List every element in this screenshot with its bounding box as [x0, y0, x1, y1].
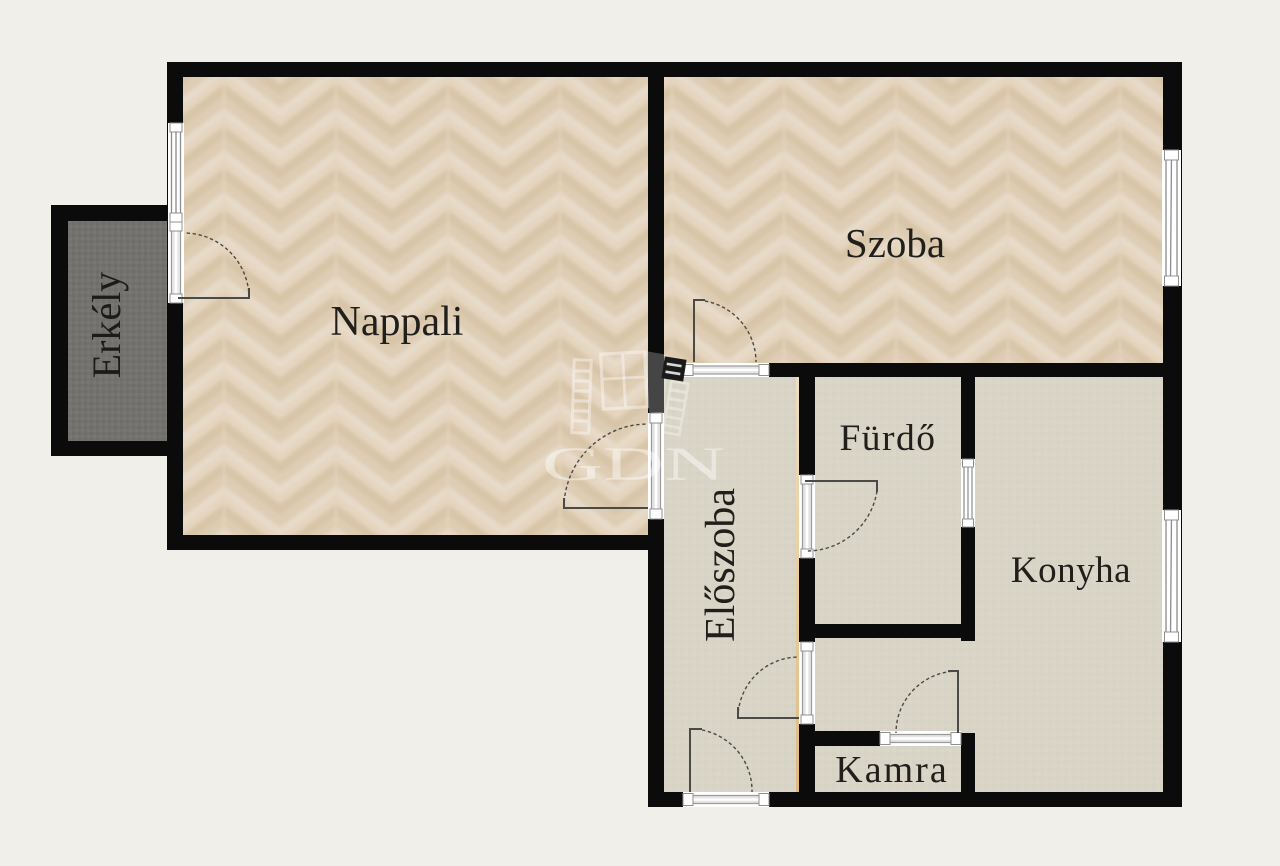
- svg-text:Nappali: Nappali: [331, 299, 464, 345]
- svg-text:Kamra: Kamra: [835, 749, 948, 791]
- svg-text:Szoba: Szoba: [845, 220, 945, 266]
- svg-text:Konyha: Konyha: [1011, 550, 1131, 591]
- svg-text:Fürdő: Fürdő: [839, 418, 936, 459]
- svg-text:Erkély: Erkély: [84, 272, 129, 379]
- svg-text:Előszoba: Előszoba: [698, 488, 744, 642]
- svg-text:GDN: GDN: [542, 438, 725, 491]
